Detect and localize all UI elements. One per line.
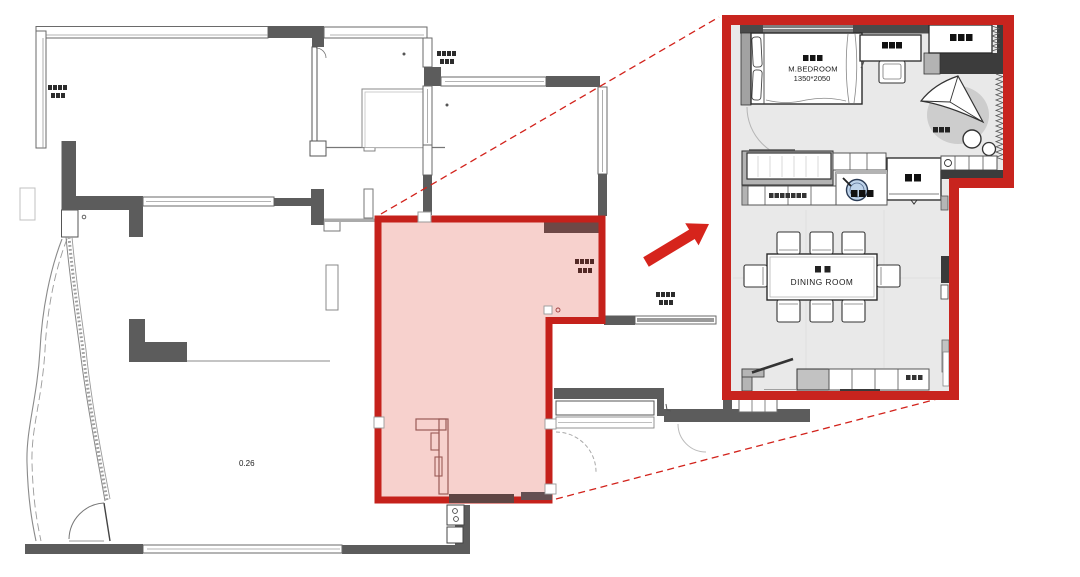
svg-text:DINING ROOM: DINING ROOM [791, 277, 854, 287]
svg-text:1350*2050: 1350*2050 [794, 74, 831, 83]
svg-text:0.26: 0.26 [239, 459, 255, 468]
svg-text:M.BEDROOM: M.BEDROOM [788, 65, 837, 74]
